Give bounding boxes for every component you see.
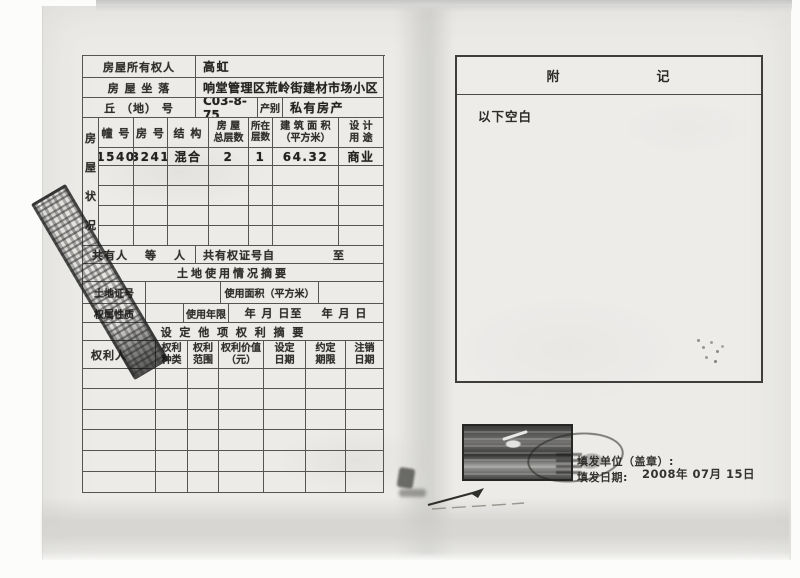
house-status-table: 房 屋 状 况 幢 号 房 号 结 构 房 屋总层数 所在层数 建 筑 面 积（…	[83, 118, 385, 246]
co-owner-row: 共有人 等 人 共有权证号自 至	[83, 246, 385, 264]
seal-characters	[556, 452, 582, 474]
designed-use-value: 商业	[339, 148, 384, 166]
rights-term-header: 约定期限	[306, 341, 346, 369]
land-section-title-row: 土地使用情况摘要	[83, 264, 385, 282]
floor-value: 1	[249, 148, 273, 166]
total-floors-value: 2	[209, 148, 249, 166]
category-value: 私有房产	[283, 98, 384, 118]
header-designed-use: 设 计用 途	[339, 118, 384, 148]
plot-row: 丘 （地） 号 C03-8-75 产别 私有房产	[83, 98, 385, 118]
header-total-floors: 房 屋总层数	[209, 118, 249, 148]
pen-arrow-mark	[418, 482, 538, 512]
category-label: 产别	[258, 98, 283, 118]
header-structure: 结 构	[168, 118, 209, 148]
house-data-row: 1540 3241 混合 2 1 64.32 商业	[99, 148, 385, 166]
header-built-area: 建 筑 面 积（平方米）	[273, 118, 339, 148]
stamp-highlight	[502, 430, 528, 441]
remarks-box: 附 记 以下空白	[455, 55, 763, 383]
location-value: 响堂管理区荒岭街建材市场小区	[196, 78, 384, 98]
house-empty-row	[99, 166, 385, 186]
land-area-value	[319, 282, 384, 304]
location-label: 房 屋 坐 落	[83, 78, 196, 98]
land-cert-value	[146, 282, 221, 304]
owner-label: 房屋所有权人	[83, 56, 196, 78]
rights-set-date-header: 设定日期	[264, 341, 306, 369]
plot-value: C03-8-75	[196, 98, 258, 118]
rights-cancel-header: 注销日期	[346, 341, 384, 369]
rights-empty-row	[83, 451, 385, 472]
remarks-title: 附 记	[457, 57, 761, 95]
rights-scope-header: 权利范围	[188, 341, 219, 369]
issue-date-value: 2008年 07月 15日	[642, 466, 755, 482]
remarks-body-text: 以下空白	[457, 95, 761, 125]
rights-value-header: 权利价值（元）	[219, 341, 264, 369]
scan-bottom-shadow	[42, 498, 790, 562]
room-no-value: 3241	[134, 148, 168, 166]
location-row: 房 屋 坐 落 响堂管理区荒岭街建材市场小区	[83, 78, 385, 98]
tenure-value	[146, 304, 184, 323]
rights-empty-row	[83, 472, 385, 493]
house-header-row: 幢 号 房 号 结 构 房 屋总层数 所在层数 建 筑 面 积（平方米） 设 计…	[99, 118, 385, 148]
rights-empty-row	[83, 430, 385, 451]
house-empty-row	[99, 186, 385, 206]
land-section-title: 土地使用情况摘要	[83, 264, 384, 282]
pencil-specks	[697, 339, 700, 342]
owner-value: 高虹	[196, 56, 384, 78]
built-area-value: 64.32	[273, 148, 339, 166]
co-owner-cert-range: 共有权证号自 至	[196, 246, 384, 264]
header-room-no: 房 号	[134, 118, 168, 148]
structure-value: 混合	[168, 148, 209, 166]
owner-info-table: 房屋所有权人 高虹 房 屋 坐 落 响堂管理区荒岭街建材市场小区 丘 （地） 号…	[82, 55, 385, 493]
plot-label: 丘 （地） 号	[83, 98, 196, 118]
land-area-label: 使用面积（平方米）	[221, 282, 319, 304]
header-floor: 所在层数	[249, 118, 273, 148]
building-no-value: 1540	[99, 148, 134, 166]
use-years-dates: 年 月 日至 年 月 日	[229, 304, 384, 323]
scan-smudge	[397, 467, 416, 489]
rights-empty-row	[83, 410, 385, 430]
owner-row: 房屋所有权人 高虹	[83, 56, 385, 78]
house-empty-row	[99, 206, 385, 226]
rights-empty-row	[83, 369, 385, 389]
use-years-label: 使用年限	[184, 304, 229, 323]
house-empty-row	[99, 226, 385, 246]
scanned-property-certificate: 房屋所有权人 高虹 房 屋 坐 落 响堂管理区荒岭街建材市场小区 丘 （地） 号…	[0, 0, 800, 578]
header-building-no: 幢 号	[99, 118, 134, 148]
rights-empty-row	[83, 389, 385, 410]
